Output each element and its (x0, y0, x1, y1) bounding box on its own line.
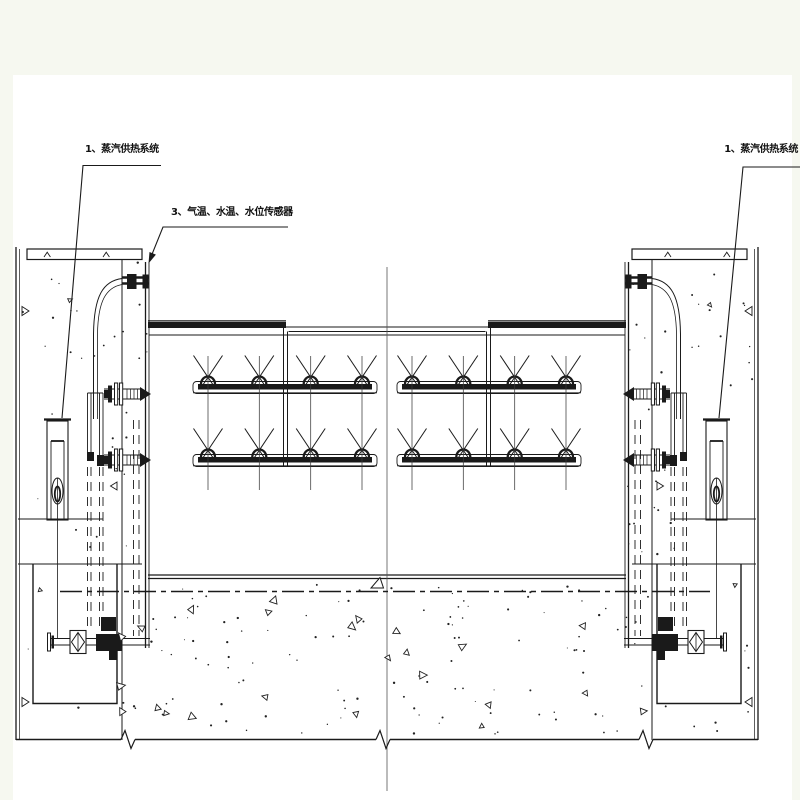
label-steam-system-right: 1、蒸汽供热系统 (724, 142, 798, 155)
drawing-stage: 1、蒸汽供热系统 3、气温、水温、水位传感器 1、蒸汽供热系统 (0, 0, 800, 800)
engineering-drawing: 1、蒸汽供热系统 3、气温、水温、水位传感器 1、蒸汽供热系统 (0, 0, 800, 800)
paper-sheet (13, 75, 792, 800)
label-sensors: 3、气温、水温、水位传感器 (171, 205, 294, 218)
label-steam-system-left: 1、蒸汽供热系统 (85, 142, 159, 155)
